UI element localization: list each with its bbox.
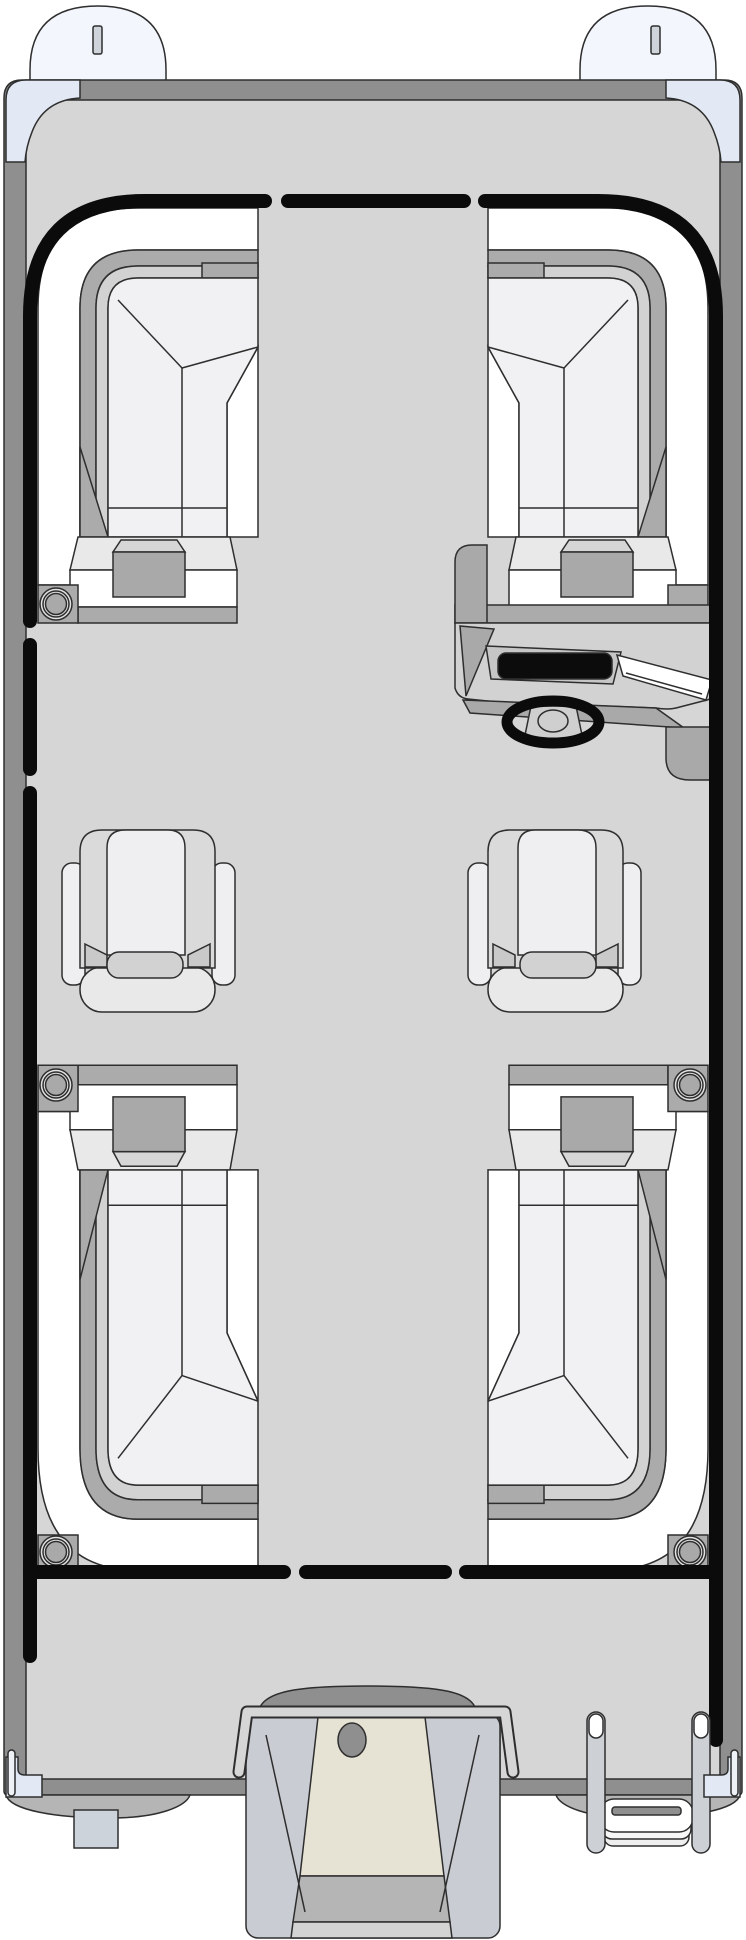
motor-midband bbox=[293, 1876, 450, 1922]
outboard-motor bbox=[239, 1686, 513, 1938]
nose-cone-slot bbox=[651, 26, 660, 54]
boat-floorplan bbox=[0, 0, 746, 1940]
motor-vent bbox=[338, 1723, 366, 1757]
nose-cone-slot bbox=[93, 26, 102, 54]
corner-cap-pin bbox=[8, 1750, 15, 1796]
ladder-rail-tip-right bbox=[694, 1714, 708, 1738]
cupholder-stern-left-aft bbox=[40, 1536, 72, 1568]
ladder-step-slot bbox=[612, 1807, 681, 1815]
captain-chair-right bbox=[468, 830, 641, 1012]
corner-cap-pin bbox=[731, 1750, 738, 1796]
captain-chair-left bbox=[62, 830, 235, 1012]
cupholder-stern-right-aft bbox=[674, 1536, 706, 1568]
console-back-band bbox=[455, 605, 716, 623]
stern-lounge-left bbox=[38, 1065, 258, 1570]
steering-hub bbox=[538, 710, 568, 732]
cupholder-stern-left-fwd bbox=[40, 1069, 72, 1101]
bow-lounge-right bbox=[488, 208, 708, 623]
dashboard-screen bbox=[498, 653, 612, 679]
ladder-rail-tip-left bbox=[589, 1714, 603, 1738]
motor-body bbox=[300, 1717, 444, 1876]
stern-lounge-right bbox=[488, 1065, 708, 1570]
cupholder-stern-right-fwd bbox=[674, 1069, 706, 1101]
helm-side-box bbox=[666, 727, 716, 780]
bow-lounge-left bbox=[38, 208, 258, 623]
cupholder-bow-left bbox=[40, 588, 72, 620]
transducer bbox=[74, 1810, 118, 1848]
console-corner-piece bbox=[455, 545, 487, 623]
floorplan-canvas bbox=[0, 0, 746, 1940]
motor-skeg bbox=[291, 1922, 452, 1938]
